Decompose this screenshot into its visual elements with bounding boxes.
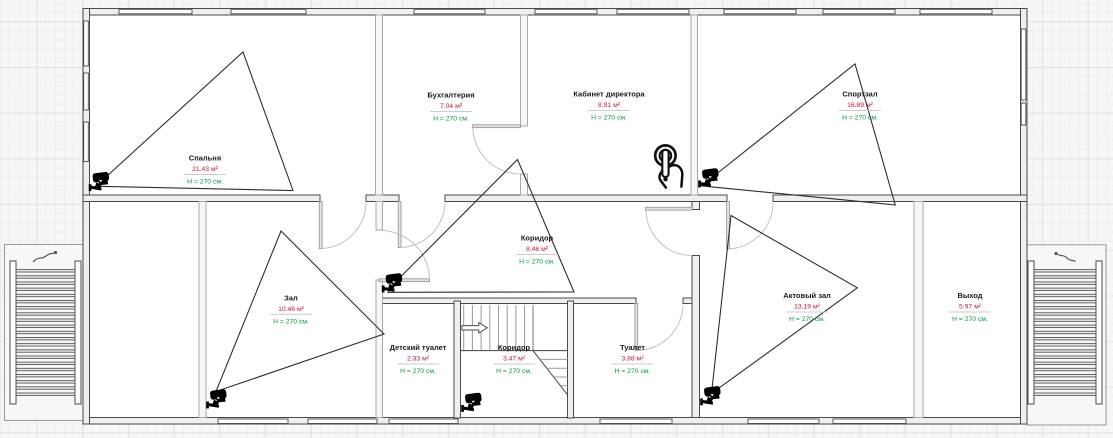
svg-text:Спортзал: Спортзал — [842, 90, 877, 99]
svg-text:Н = 270 см.: Н = 270 см. — [496, 368, 532, 375]
svg-text:7.04 м²: 7.04 м² — [440, 103, 463, 110]
svg-text:Н = 270 см.: Н = 270 см. — [789, 316, 825, 323]
svg-text:Н = 270 см.: Н = 270 см. — [519, 259, 555, 266]
svg-text:Н = 270 см.: Н = 270 см. — [187, 179, 223, 186]
svg-text:Н = 270 см.: Н = 270 см. — [842, 115, 878, 122]
svg-text:13.19 м²: 13.19 м² — [794, 304, 821, 311]
svg-text:21.43 м²: 21.43 м² — [192, 166, 219, 173]
svg-text:Н = 270 см.: Н = 270 см. — [952, 316, 988, 323]
svg-text:Туалет: Туалет — [620, 343, 645, 352]
svg-text:16.89 м²: 16.89 м² — [847, 102, 874, 109]
svg-text:5.97 м²: 5.97 м² — [959, 304, 982, 311]
svg-text:Коридор: Коридор — [498, 343, 531, 352]
svg-text:Н = 270 см.: Н = 270 см. — [615, 368, 651, 375]
svg-text:Кабинет директора: Кабинет директора — [573, 90, 645, 99]
svg-text:Бухгалтерия: Бухгалтерия — [427, 91, 474, 100]
svg-text:Актовый зал: Актовый зал — [783, 291, 831, 300]
svg-text:8.91 м²: 8.91 м² — [598, 102, 621, 109]
svg-text:Н = 270 см.: Н = 270 см. — [400, 368, 436, 375]
svg-text:3.47 м²: 3.47 м² — [503, 356, 526, 363]
svg-text:Спальня: Спальня — [189, 154, 221, 163]
svg-text:Н = 270 см.: Н = 270 см. — [591, 115, 627, 122]
svg-text:Выход: Выход — [957, 291, 982, 300]
svg-text:Детский туалет: Детский туалет — [390, 343, 447, 352]
svg-text:3.88 м²: 3.88 м² — [621, 356, 644, 363]
svg-text:Зал: Зал — [284, 293, 298, 302]
svg-text:Н = 270 см.: Н = 270 см. — [433, 116, 469, 123]
svg-text:2.33 м²: 2.33 м² — [407, 356, 430, 363]
svg-text:10.46 м²: 10.46 м² — [278, 306, 305, 313]
svg-text:Коридор: Коридор — [521, 234, 554, 243]
svg-text:Н = 270 см.: Н = 270 см. — [273, 318, 309, 325]
svg-text:8.46 м²: 8.46 м² — [526, 246, 549, 253]
